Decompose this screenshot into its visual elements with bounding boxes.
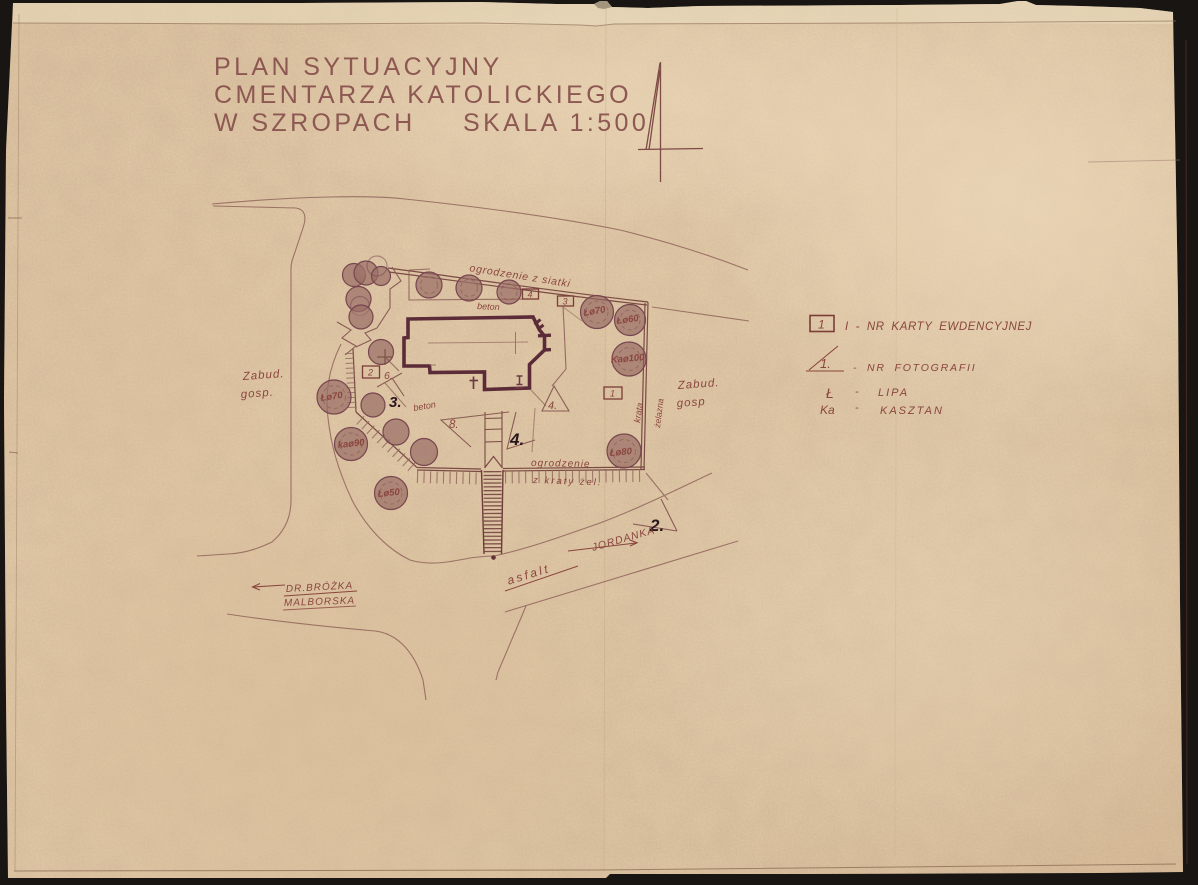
svg-text:4.: 4. [509,430,524,449]
svg-text:PLAN SYTUACYJNY: PLAN SYTUACYJNY [214,53,503,81]
svg-text:-: - [855,386,859,398]
svg-text:KASZTAN: KASZTAN [880,405,944,417]
svg-text:ogrodzenie: ogrodzenie [531,458,591,470]
svg-text:Ł: Ł [826,385,834,401]
svg-text:3: 3 [563,297,568,307]
svg-text:gosp: gosp [676,396,706,410]
svg-text:1: 1 [610,389,615,399]
svg-text:- NR FOTOGRAFII: - NR FOTOGRAFII [853,362,976,374]
svg-text:1: 1 [818,318,825,332]
svg-text:SKALA 1:500: SKALA 1:500 [463,109,649,137]
svg-text:1.: 1. [820,356,831,371]
svg-text:gosp.: gosp. [240,387,274,401]
svg-text:-: - [855,402,859,414]
svg-text:4: 4 [528,290,533,300]
svg-text:4.: 4. [548,400,557,412]
svg-text:3.: 3. [389,394,402,411]
svg-text:beton: beton [477,301,500,312]
svg-text:2: 2 [367,368,373,378]
svg-text:6.: 6. [384,370,393,382]
svg-text:8.: 8. [449,419,459,431]
svg-text:LIPA: LIPA [878,387,909,399]
svg-text:Ka: Ka [820,403,835,417]
svg-text:CMENTARZA KATOLICKIEGO: CMENTARZA KATOLICKIEGO [214,81,632,109]
svg-text:W SZROPACH: W SZROPACH [214,109,416,137]
svg-text:Łø80: Łø80 [608,446,633,459]
svg-text:I - NR KARTY EWDENCYJNEJ: I - NR KARTY EWDENCYJNEJ [845,321,1032,333]
